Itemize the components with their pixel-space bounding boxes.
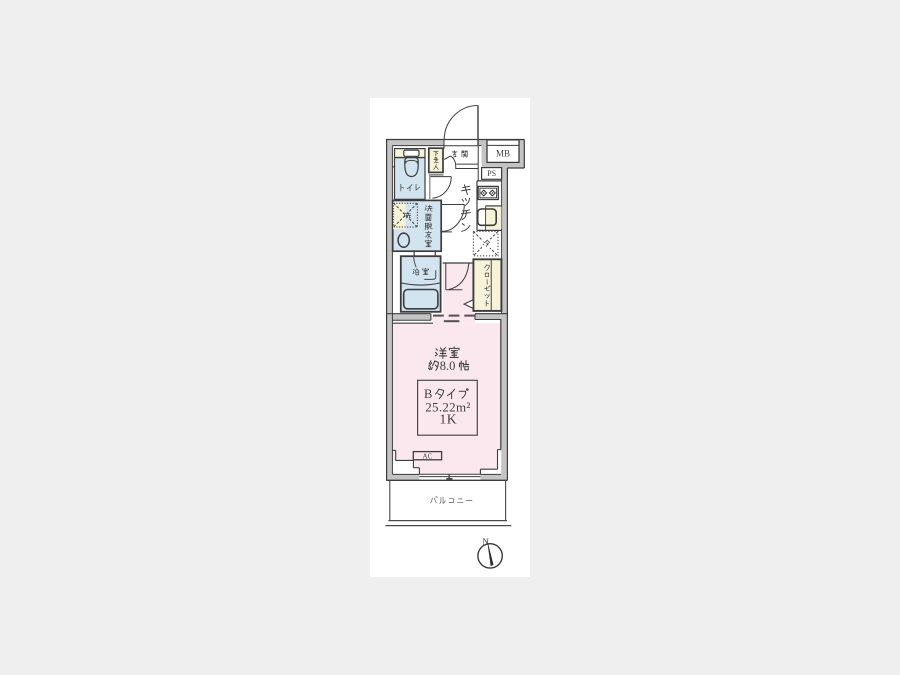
svg-text:8.0: 8.0 <box>440 359 456 373</box>
svg-text:AC: AC <box>423 452 433 460</box>
svg-text:MB: MB <box>496 149 510 159</box>
svg-text:N: N <box>483 537 490 547</box>
svg-text:1K: 1K <box>440 412 458 427</box>
svg-text:PS: PS <box>487 169 496 178</box>
